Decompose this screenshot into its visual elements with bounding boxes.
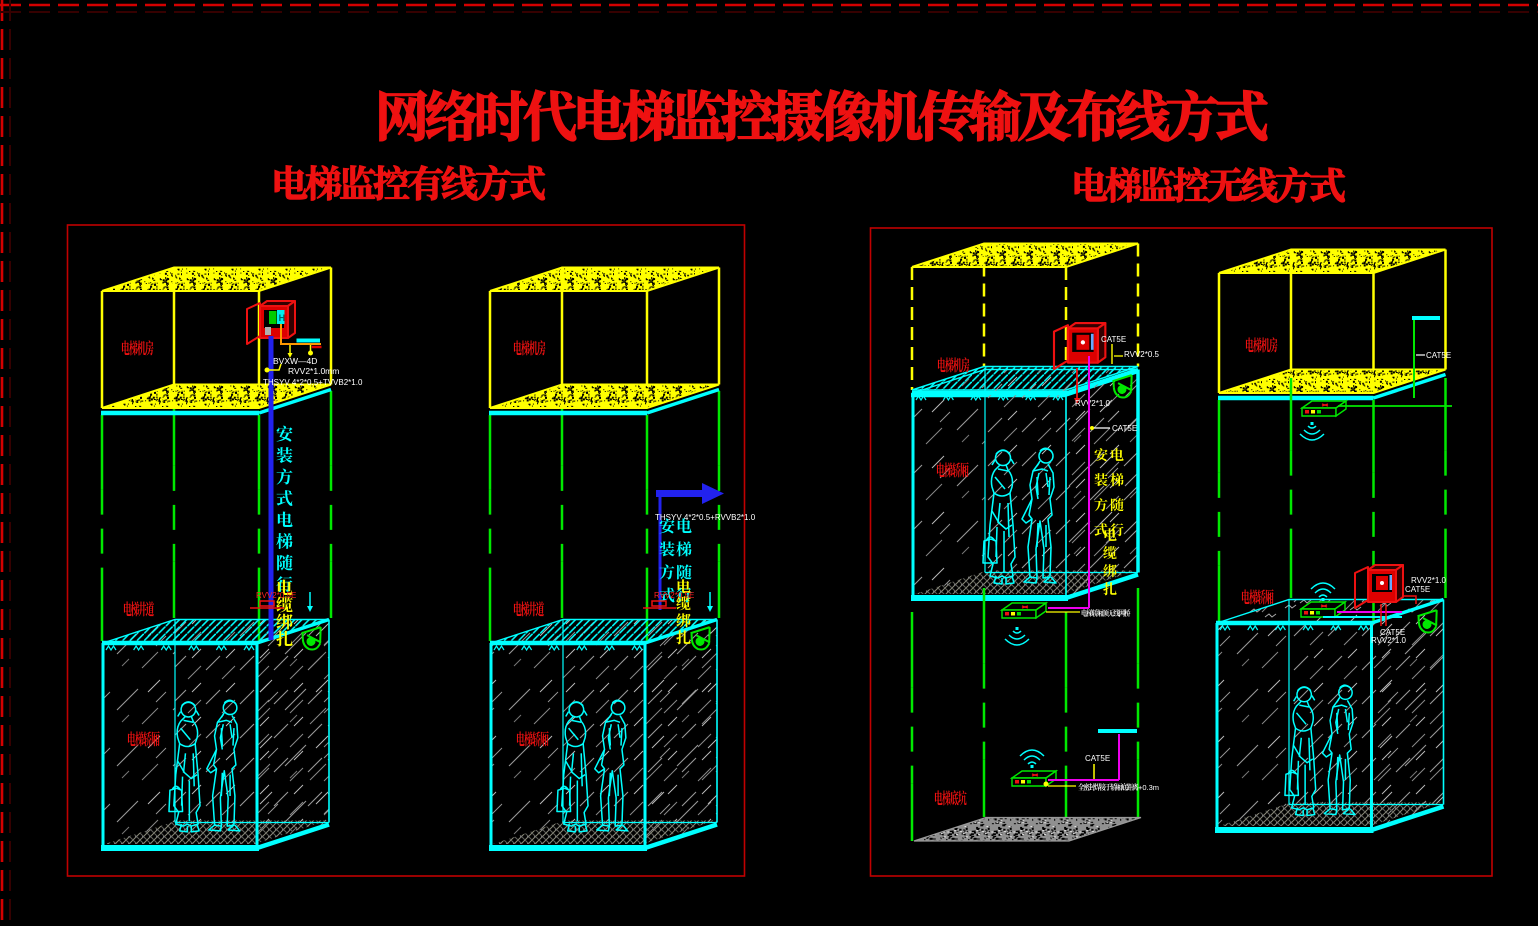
svg-text:RVV2*1.0mm: RVV2*1.0mm [288, 366, 339, 376]
svg-text:RVV2*0.5: RVV2*0.5 [1124, 350, 1160, 359]
svg-text:RVV2*1.0: RVV2*1.0 [1411, 576, 1447, 585]
svg-text:H: H [279, 313, 286, 323]
svg-text:RVV2*0.5E: RVV2*0.5E [256, 591, 296, 600]
svg-text:THSYV 4*2*0.5+TVVB2*1.0: THSYV 4*2*0.5+TVVB2*1.0 [263, 378, 363, 387]
svg-text:CAT5E: CAT5E [1101, 335, 1126, 344]
svg-text:CAT5E: CAT5E [1426, 351, 1451, 360]
svg-text:RVV2*0.5E: RVV2*0.5E [654, 591, 694, 600]
svg-text:THSYV 4*2*0.5+RVVB2*1.0: THSYV 4*2*0.5+RVVB2*1.0 [655, 513, 756, 522]
svg-text:BVXW—4D: BVXW—4D [273, 356, 317, 366]
svg-text:RVV2*1.0: RVV2*1.0 [1371, 636, 1407, 645]
svg-text:CAT5E: CAT5E [1085, 754, 1110, 763]
svg-text:RVV2*1.0: RVV2*1.0 [1075, 399, 1111, 408]
svg-text:CAT5E: CAT5E [1405, 585, 1430, 594]
svg-text:CAT5E: CAT5E [1112, 424, 1137, 433]
svg-text:+0.3m: +0.3m [1138, 783, 1159, 792]
